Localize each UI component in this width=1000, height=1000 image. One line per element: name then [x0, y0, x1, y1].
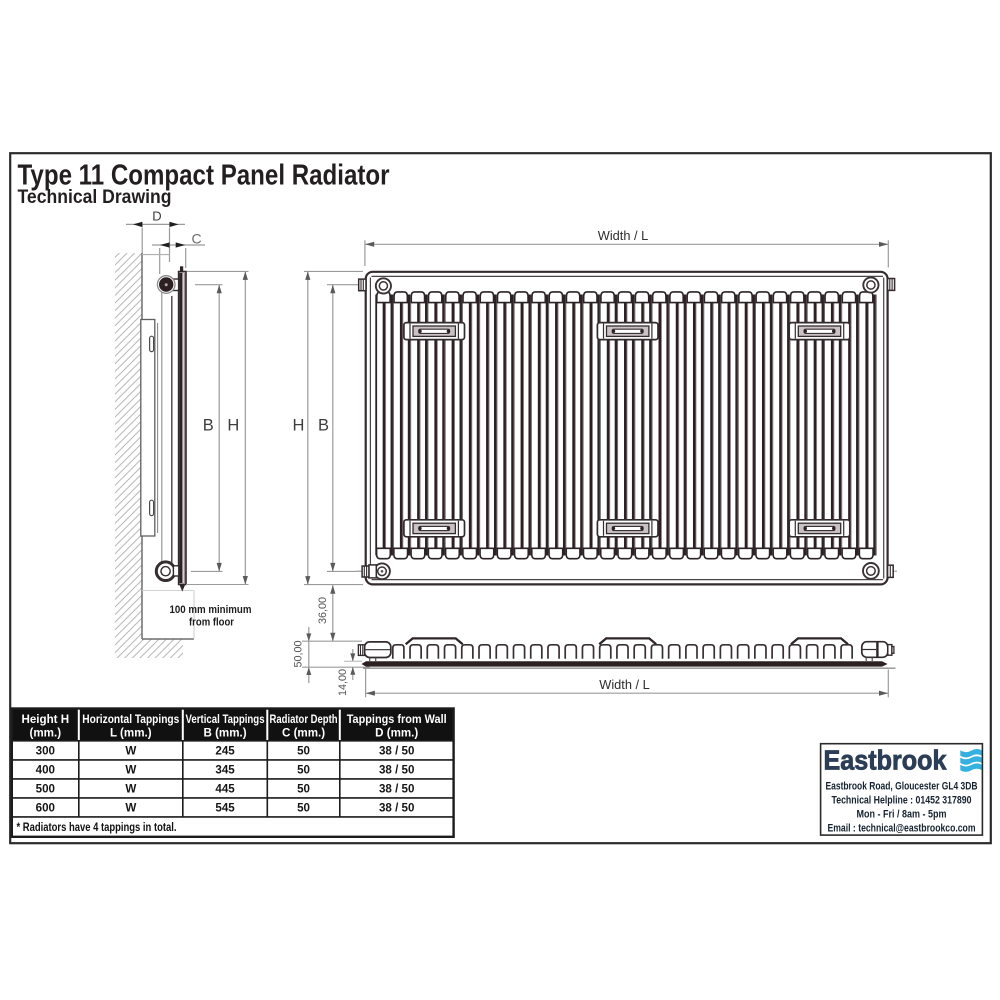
svg-text:Horizontal Tappings: Horizontal Tappings	[82, 713, 179, 726]
svg-text:* Radiators have 4 tappings in: * Radiators have 4 tappings in total.	[17, 820, 177, 834]
svg-text:Eastbrook Road, Gloucester GL4: Eastbrook Road, Gloucester GL4 3DB	[826, 780, 978, 792]
svg-text:C (mm.): C (mm.)	[282, 727, 325, 740]
svg-text:B: B	[318, 417, 329, 435]
svg-text:Height H: Height H	[21, 713, 69, 726]
svg-text:H: H	[293, 417, 305, 435]
svg-text:38 / 50: 38 / 50	[379, 745, 414, 758]
svg-text:H: H	[227, 417, 239, 435]
svg-text:345: 345	[215, 764, 235, 777]
svg-text:from floor: from floor	[189, 617, 235, 629]
svg-text:Eastbrook: Eastbrook	[824, 745, 948, 776]
svg-text:500: 500	[36, 783, 55, 796]
svg-text:W: W	[125, 764, 136, 777]
svg-text:50: 50	[297, 745, 310, 758]
svg-text:38 / 50: 38 / 50	[379, 783, 414, 796]
svg-text:38 / 50: 38 / 50	[379, 802, 414, 815]
svg-text:Width / L: Width / L	[598, 228, 649, 243]
svg-text:Email : technical@eastbrookco.: Email : technical@eastbrookco.com	[828, 822, 976, 834]
svg-text:Width / L: Width / L	[599, 677, 650, 692]
svg-text:400: 400	[36, 764, 55, 777]
svg-text:D: D	[152, 209, 161, 224]
svg-text:B (mm.): B (mm.)	[203, 727, 246, 740]
svg-text:100 mm minimum: 100 mm minimum	[170, 604, 252, 616]
svg-text:50: 50	[297, 802, 310, 815]
svg-text:600: 600	[36, 802, 55, 815]
svg-text:300: 300	[36, 745, 55, 758]
svg-text:D (mm.): D (mm.)	[375, 727, 418, 740]
svg-text:Radiator Depth: Radiator Depth	[270, 713, 338, 726]
svg-text:(mm.): (mm.)	[30, 727, 62, 740]
svg-text:Vertical Tappings: Vertical Tappings	[186, 713, 265, 726]
svg-text:Mon - Fri / 8am - 5pm: Mon - Fri / 8am - 5pm	[857, 808, 947, 820]
svg-text:445: 445	[215, 783, 235, 796]
svg-text:Technical Drawing: Technical Drawing	[18, 186, 172, 208]
svg-text:W: W	[125, 802, 136, 815]
svg-text:Technical Helpline : 01452 317: Technical Helpline : 01452 317890	[832, 794, 972, 806]
svg-text:Tappings from Wall: Tappings from Wall	[347, 713, 447, 726]
svg-text:36,00: 36,00	[317, 597, 329, 624]
svg-text:245: 245	[215, 745, 235, 758]
svg-text:14,00: 14,00	[337, 669, 349, 696]
svg-text:L (mm.): L (mm.)	[110, 727, 152, 740]
svg-text:W: W	[125, 745, 136, 758]
svg-text:50,00: 50,00	[293, 640, 305, 667]
svg-text:50: 50	[297, 764, 310, 777]
svg-text:50: 50	[297, 783, 310, 796]
svg-text:C: C	[191, 231, 201, 247]
svg-text:38 / 50: 38 / 50	[379, 764, 414, 777]
svg-text:B: B	[203, 417, 214, 435]
svg-text:W: W	[125, 783, 136, 796]
svg-text:545: 545	[215, 802, 235, 815]
